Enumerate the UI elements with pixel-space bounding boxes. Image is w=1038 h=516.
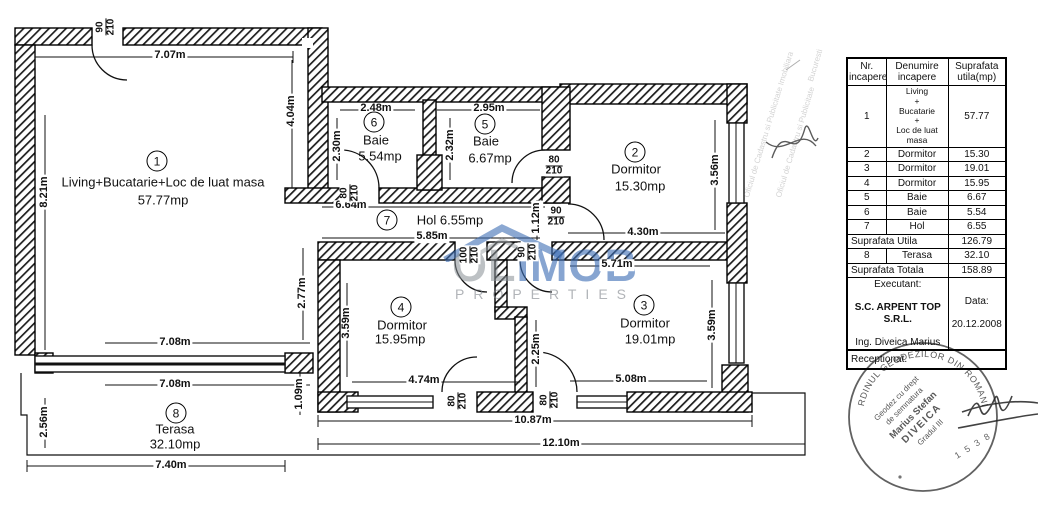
date-value: 20.12.2008 — [952, 319, 1002, 330]
dimension-label: 10.87m — [512, 415, 553, 427]
room-number-circle: 1 — [147, 151, 168, 172]
room-number-circle: 8 — [166, 403, 187, 424]
table-cell: Baie — [886, 191, 948, 206]
room-area: 15.30mp — [615, 179, 666, 194]
dimension-label: 7.08m — [157, 379, 192, 391]
dimension-label: 5.85m — [414, 231, 449, 243]
table-row: 2Dormitor15.30 — [847, 147, 1006, 162]
table-row: 5Baie6.67 — [847, 191, 1006, 206]
door-size-label: 80210 — [340, 184, 361, 203]
table-header-area: Suprafata utila(mp) — [948, 58, 1006, 86]
room-label: Hol 6.55mp — [417, 213, 483, 228]
room1-area: 57.77 — [948, 86, 1006, 148]
table-cell: Dormitor — [886, 147, 948, 162]
dimension-label: 3.59m — [341, 305, 353, 340]
door-size-label: 90210 — [518, 243, 539, 262]
dimension-label: 4.30m — [625, 227, 660, 239]
dimension-label: 7.08m — [157, 337, 192, 349]
executant-cell: Executant: S.C. ARPENT TOP S.R.L. Ing. D… — [847, 278, 948, 351]
table-cell: 4 — [847, 176, 886, 191]
dimension-label: 7.07m — [152, 50, 187, 62]
room-number-circle: 5 — [475, 114, 496, 135]
total-label: Suprafata Totala — [847, 263, 948, 278]
door-size-label: 80210 — [545, 156, 564, 177]
subtotal-label: Suprafata Utila — [847, 234, 948, 249]
room-number-circle: 3 — [634, 295, 655, 316]
table-cell: 2 — [847, 147, 886, 162]
table-cell: Dormitor — [886, 162, 948, 177]
dimension-label: 1.12m — [531, 200, 543, 235]
dimension-label: 2.32m — [445, 127, 457, 162]
table-cell: 6 — [847, 205, 886, 220]
room-name: Living+Bucatarie+Loc de luat masa — [61, 175, 264, 190]
executant-company: S.C. ARPENT TOP S.R.L. — [855, 302, 941, 325]
table-cell: 6.67 — [948, 191, 1006, 206]
dimension-label: 2.95m — [471, 103, 506, 115]
table-cell: 15.30 — [948, 147, 1006, 162]
dimension-label: 8.21m — [39, 174, 51, 209]
table-cell: 3 — [847, 162, 886, 177]
room1-name: Living + Bucatarie + Loc de luat masa — [886, 86, 948, 148]
table-cell: 6.55 — [948, 220, 1006, 235]
room-number-circle: 4 — [391, 297, 412, 318]
table-cell: 19.01 — [948, 162, 1006, 177]
dimension-label: 7.40m — [153, 460, 188, 472]
floor-plan-document: ORDINUL GEODEZILOR DIN ROMANIA Geodez cu… — [0, 0, 1038, 516]
room-area: 15.95mp — [375, 332, 426, 347]
room-name: Dormitor — [611, 162, 661, 177]
room-area: 5.54mp — [358, 149, 401, 164]
table-cell: 8 — [847, 249, 886, 264]
stamp-number: 1 5 3 8 — [953, 430, 994, 460]
receptionat-label: Receptionat. — [847, 350, 1006, 369]
table-cell: Dormitor — [886, 176, 948, 191]
room-number-circle: 6 — [364, 112, 385, 133]
room-area-table: Nr. incapere Denumire incapere Suprafata… — [846, 57, 1007, 370]
table-cell: Hol — [886, 220, 948, 235]
dimension-label: 4.74m — [406, 375, 441, 387]
table-cell: 5 — [847, 191, 886, 206]
dimension-label: 3.56m — [710, 152, 722, 187]
door-size-label: 100210 — [460, 246, 481, 265]
date-cell: Data: 20.12.2008 — [948, 278, 1006, 351]
dimension-label: 12.10m — [540, 438, 581, 450]
room-name: Baie — [473, 134, 499, 149]
room-number-circle: 2 — [625, 142, 646, 163]
table-row: 4Dormitor15.95 — [847, 176, 1006, 191]
table-cell: 7 — [847, 220, 886, 235]
room1-number: 1 — [847, 86, 886, 148]
table-row: 6Baie5.54 — [847, 205, 1006, 220]
dimension-label: 2.56m — [39, 404, 51, 439]
subtotal-value: 126.79 — [948, 234, 1006, 249]
table-cell: 15.95 — [948, 176, 1006, 191]
door-size-label: 90210 — [96, 18, 117, 37]
dimension-label: 5.08m — [613, 374, 648, 386]
room-name: Baie — [363, 133, 389, 148]
room-name: Terasa — [155, 422, 194, 437]
room-area: 57.77mp — [138, 193, 189, 208]
room-name: Dormitor — [620, 316, 670, 331]
room-area: 19.01mp — [625, 332, 676, 347]
total-value: 158.89 — [948, 263, 1006, 278]
dimension-label: 4.04m — [286, 93, 298, 128]
room-area: 6.67mp — [468, 151, 511, 166]
table-header-nr: Nr. incapere — [847, 58, 886, 86]
table-cell: 32.10 — [948, 249, 1006, 264]
room-area: 32.10mp — [150, 437, 201, 452]
dimension-label: 2.77m — [297, 275, 309, 310]
dimension-label: 2.30m — [332, 128, 344, 163]
table-cell: 5.54 — [948, 205, 1006, 220]
stamp-signature — [958, 396, 1038, 428]
door-size-label: 80210 — [448, 392, 469, 411]
dimension-label: 3.59m — [707, 307, 719, 342]
room-number-circle: 7 — [377, 210, 398, 231]
table-header-name: Denumire incapere — [886, 58, 948, 86]
room-name: Dormitor — [377, 318, 427, 333]
dimension-label: 1.09m — [294, 376, 306, 411]
dimension-label: 2.25m — [531, 331, 543, 366]
door-size-label: 80210 — [540, 391, 561, 410]
dimension-label: 5.71m — [599, 259, 634, 271]
executant-engineer: Ing. Diveica Marius — [855, 337, 940, 348]
table-cell: Terasa — [886, 249, 948, 264]
table-row: 8Terasa32.10 — [847, 249, 1006, 264]
table-row: 3Dormitor19.01 — [847, 162, 1006, 177]
door-size-label: 90210 — [547, 207, 566, 228]
table-cell: Baie — [886, 205, 948, 220]
table-row: 7Hol6.55 — [847, 220, 1006, 235]
